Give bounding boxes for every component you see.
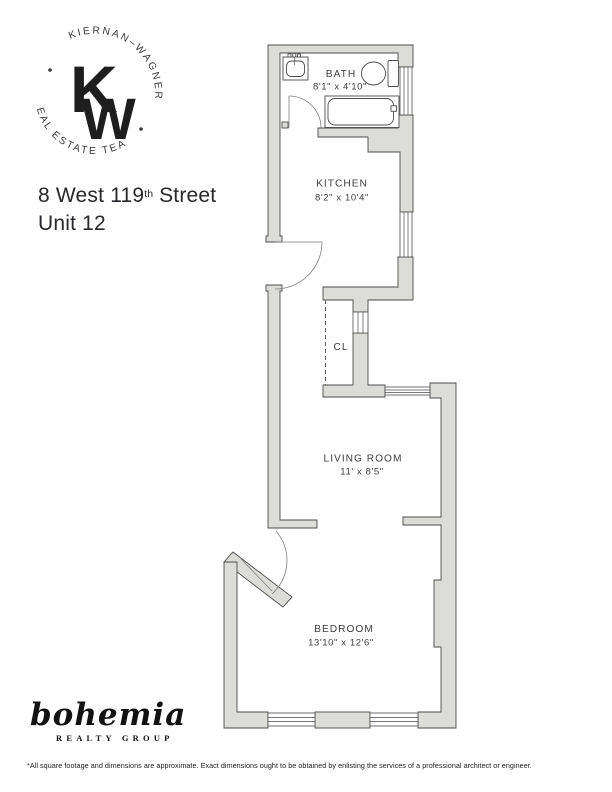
door-bath	[289, 96, 321, 128]
room-label-bath: BATH	[326, 69, 356, 80]
wall-right-main	[403, 383, 456, 728]
wall-cl-top	[323, 257, 413, 312]
door-kitchen-entry	[275, 242, 322, 289]
bohemia-logo: bohemia REALTY GROUP	[30, 700, 186, 743]
floorplan-document-page: KIERNAN–WAGNER REAL ESTATE TEAM K W 8 We…	[0, 0, 612, 792]
disclaimer-text: *All square footage and dimensions are a…	[27, 761, 605, 770]
room-dims-living-room: 11' x 8'5"	[340, 467, 383, 478]
wall-left-mid	[266, 285, 317, 528]
sink-icon	[283, 53, 308, 80]
room-label-bedroom: BEDROOM	[314, 624, 374, 635]
window-bedroom-left	[268, 713, 315, 726]
room-dims-bath: 8'1" x 4'10"	[313, 82, 367, 93]
room-label-living-room: LIVING ROOM	[324, 454, 403, 465]
wall-bedroom-bottom-pier	[315, 712, 370, 728]
room-dims-kitchen: 8'2" x 10'4"	[315, 193, 369, 204]
window-bath	[400, 67, 412, 115]
window-bedroom-right	[370, 713, 418, 726]
bohemia-script-text: bohemia	[30, 700, 186, 731]
room-label-closet: CL	[333, 342, 348, 353]
room-dims-bedroom: 13'10" x 12'6"	[308, 638, 374, 649]
floor-plan-drawing: BATH 8'1" x 4'10" KITCHEN 8'2" x 10'4" C…	[0, 0, 612, 792]
wall-bath-jamb	[282, 122, 288, 128]
doors	[241, 96, 322, 594]
window-kitchen	[400, 212, 412, 257]
window-closet	[353, 312, 368, 333]
wall-cl-bottom	[323, 333, 385, 397]
window-living-room	[385, 387, 430, 395]
bathtub-icon	[325, 96, 399, 128]
room-label-kitchen: KITCHEN	[316, 179, 368, 190]
toilet-icon	[362, 61, 399, 87]
bohemia-subtitle: REALTY GROUP	[56, 733, 186, 743]
